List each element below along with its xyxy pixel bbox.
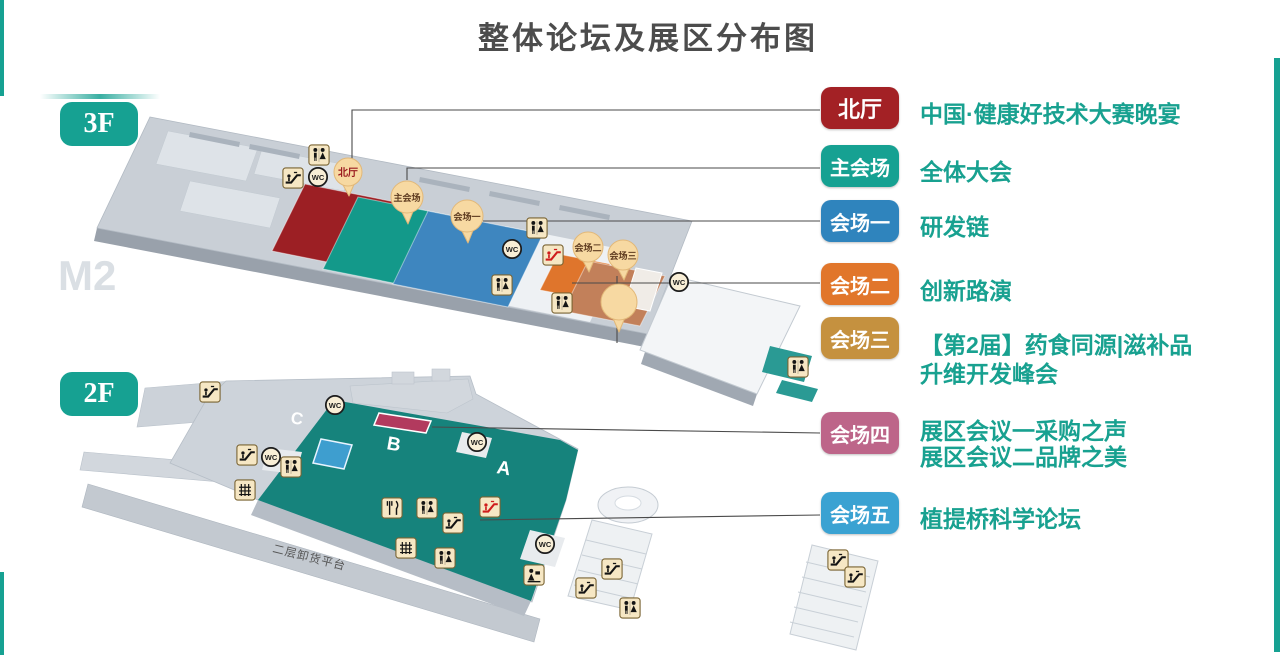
legend-badge-venue1: 会场一: [821, 200, 899, 242]
legend-badge-venue2: 会场二: [821, 263, 899, 305]
escalator-icon: [200, 382, 220, 402]
frame-accent-tick: [40, 94, 160, 99]
legend-desc-main-venue: 全体大会: [920, 153, 1012, 187]
balloon-venue1-label: 会场一: [453, 211, 480, 222]
legend-badge-venue4: 会场四: [821, 412, 899, 454]
balloon-venue2-label: 会场二: [574, 242, 601, 253]
legend-desc-venue1: 研发链: [920, 208, 989, 242]
f2-curved-stair-inner: [615, 496, 641, 510]
legend-badge-north-hall: 北厅: [821, 87, 899, 129]
escalator-icon: [845, 567, 865, 587]
legend-badge-venue5: 会场五: [821, 492, 899, 534]
f3-teal-strip: [776, 380, 818, 402]
page-title: 整体论坛及展区分布图: [8, 13, 1280, 58]
frame-accent-right: [1274, 58, 1280, 652]
wc-icon-label: WC: [539, 540, 552, 549]
legend-desc-venue5: 植提桥科学论坛: [920, 500, 1081, 534]
wc-icon-label: WC: [506, 245, 519, 254]
restroom-icon: [492, 275, 512, 295]
venue-map-poster: M2: [0, 0, 1280, 655]
frame-accent-left-bottom: [0, 572, 4, 655]
legend-desc-venue4-line2: 展区会议二品牌之美: [920, 438, 1127, 472]
restroom-icon: [620, 598, 640, 618]
f2-protrusion-bump: [392, 372, 414, 384]
restroom-icon: [309, 145, 329, 165]
legend-desc-north-hall: 中国·健康好技术大赛晚宴: [920, 95, 1181, 129]
escalator-icon: [237, 445, 257, 465]
escalator-icon: [828, 550, 848, 570]
restroom-icon: [281, 457, 301, 477]
escalator-icon-red: [480, 497, 500, 517]
service-desk-icon: [524, 565, 544, 585]
restroom-icon: [788, 357, 808, 377]
restroom-icon: [552, 293, 572, 313]
f2-booth-blue: [313, 439, 352, 469]
legend-desc-venue3-line2: 升维开发峰会: [920, 355, 1058, 389]
escalator-icon: [576, 578, 596, 598]
restaurant-icon: [382, 498, 402, 518]
floor-badge-3f: 3F: [60, 102, 138, 146]
restroom-icon: [417, 498, 437, 518]
legend-badge-venue3: 会场三: [821, 317, 899, 359]
balloon-main-venue-label: 主会场: [393, 192, 420, 203]
escalator-icon: [602, 559, 622, 579]
wc-icon-label: WC: [265, 453, 278, 462]
wc-icon-label: WC: [673, 278, 686, 287]
leader-north-hall: [352, 110, 820, 160]
freight-elevator-icon: [396, 538, 416, 558]
freight-elevator-icon: [235, 480, 255, 500]
floor-2f-map: C B A 二层卸货平台: [80, 369, 878, 650]
f3-white-room: [640, 276, 800, 394]
floor-3f-map: [94, 117, 818, 406]
escalator-icon: [283, 168, 303, 188]
wc-icon-label: WC: [471, 438, 484, 447]
watermark-m2: M2: [58, 252, 116, 299]
legend-badge-main-venue: 主会场: [821, 145, 899, 187]
balloon-venue3-label: 会场三: [609, 250, 636, 261]
frame-accent-left-top: [0, 0, 4, 96]
restroom-icon: [527, 218, 547, 238]
wc-icon-label: WC: [329, 401, 342, 410]
restroom-icon: [435, 548, 455, 568]
legend-desc-venue2: 创新路演: [920, 272, 1012, 306]
balloon-north-hall-label: 北厅: [338, 166, 358, 179]
floor-badge-2f: 2F: [60, 372, 138, 416]
escalator-icon: [443, 513, 463, 533]
wc-icon-label: WC: [312, 173, 325, 182]
escalator-icon-red: [543, 245, 563, 265]
f2-protrusion-bump: [432, 369, 450, 381]
